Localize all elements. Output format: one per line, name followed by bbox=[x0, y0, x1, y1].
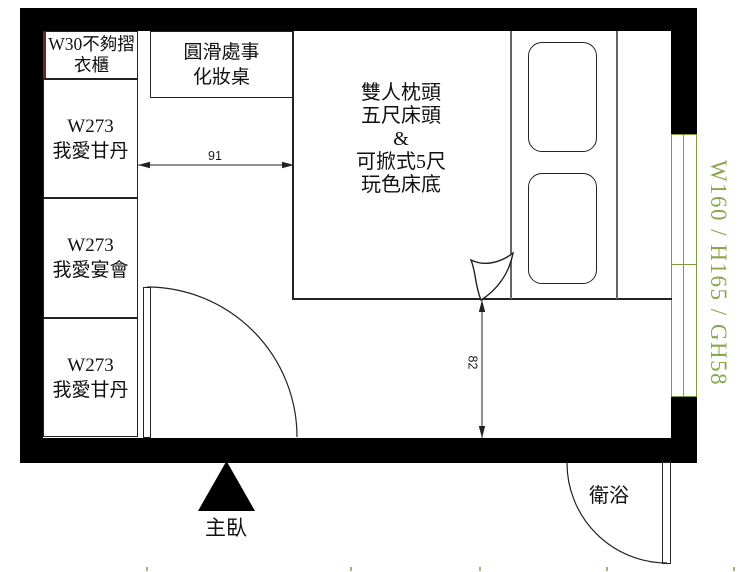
wardrobe-label: W273 bbox=[67, 353, 113, 378]
wall-right-lower bbox=[671, 396, 697, 463]
bed-label-line: 雙人枕頭 bbox=[292, 82, 510, 105]
window-dimension-note: W160 / H165 / GH58 bbox=[705, 145, 731, 401]
wardrobe-label: 我愛宴會 bbox=[52, 258, 128, 283]
dressing-table-label: 圓滑處事 bbox=[183, 40, 259, 65]
wardrobe-label: 我愛甘丹 bbox=[52, 139, 128, 164]
ruler-tick bbox=[606, 567, 608, 571]
bed-label: 雙人枕頭 五尺床頭 & 可掀式5尺 玩色床底 bbox=[292, 82, 510, 197]
pillow-top bbox=[528, 42, 597, 152]
wardrobe-label: 衣櫃 bbox=[74, 55, 109, 76]
ruler-tick bbox=[146, 567, 148, 571]
entrance-triangle-icon bbox=[196, 460, 257, 513]
wardrobe-label: W30不夠摺 bbox=[48, 34, 135, 55]
window-mullion bbox=[683, 135, 684, 396]
lift-corner-curl-icon bbox=[464, 250, 516, 302]
ruler-tick bbox=[350, 567, 352, 571]
bathroom-label: 衛浴 bbox=[584, 479, 634, 508]
room-label: 主臥 bbox=[193, 512, 259, 542]
ruler-tick bbox=[733, 567, 735, 571]
entry-door-swing-arc bbox=[145, 285, 299, 439]
wardrobe-section-2: W273 我愛宴會 bbox=[43, 198, 138, 318]
wardrobe-section-w30: W30不夠摺 衣櫃 bbox=[43, 31, 138, 79]
dimension-value-91: 91 bbox=[198, 150, 232, 163]
dimension-value-82: 82 bbox=[466, 350, 479, 376]
wall-right-upper bbox=[671, 8, 697, 135]
ruler-tick bbox=[479, 567, 481, 571]
dressing-table: 圓滑處事 化妝桌 bbox=[150, 31, 293, 98]
bed-label-line: & bbox=[292, 128, 510, 151]
wall-left bbox=[20, 8, 43, 463]
bed-label-line: 可掀式5尺 bbox=[292, 151, 510, 174]
bathroom-door-swing-arc bbox=[565, 461, 670, 566]
wardrobe-label: W273 bbox=[67, 114, 113, 139]
wall-bottom bbox=[20, 438, 697, 463]
window bbox=[671, 134, 697, 397]
window-divider bbox=[672, 264, 696, 265]
wardrobe-section-1: W273 我愛甘丹 bbox=[43, 79, 138, 198]
floor-plan-canvas: W160 / H165 / GH58 W30不夠摺 衣櫃 W273 我愛甘丹 W… bbox=[0, 0, 751, 572]
bed-headboard-divider bbox=[616, 31, 618, 299]
wardrobe-label: W273 bbox=[67, 233, 113, 258]
bed-label-line: 五尺床頭 bbox=[292, 105, 510, 128]
pillow-bottom bbox=[528, 173, 597, 284]
dressing-table-label: 化妝桌 bbox=[193, 65, 250, 90]
bed-label-line: 玩色床底 bbox=[292, 174, 510, 197]
wardrobe-section-3: W273 我愛甘丹 bbox=[43, 318, 138, 437]
wardrobe-label: 我愛甘丹 bbox=[52, 378, 128, 403]
wall-top bbox=[20, 8, 697, 31]
